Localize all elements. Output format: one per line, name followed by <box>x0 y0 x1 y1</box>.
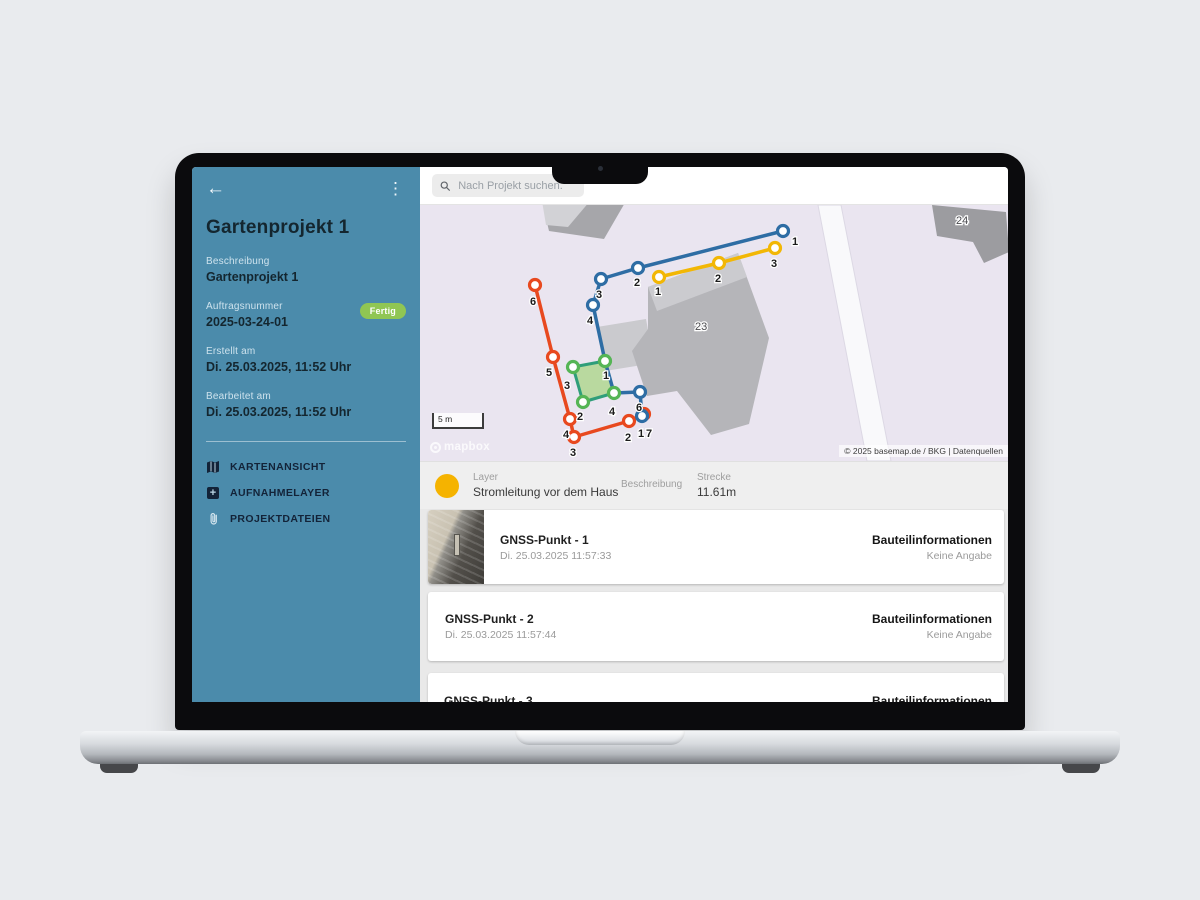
map-canvas[interactable]: 65432112346712313242324 <box>420 205 1008 461</box>
svg-text:4: 4 <box>587 315 594 327</box>
menu-label: KARTENANSICHT <box>230 461 326 473</box>
layer-value: Stromleitung vor dem Haus <box>473 485 621 499</box>
gnss-point-card[interactable]: GNSS-Punkt - 1 Di. 25.03.2025 11:57:33 B… <box>428 510 1004 584</box>
field-beschreibung: Beschreibung Gartenprojekt 1 <box>206 256 406 284</box>
point-title: GNSS-Punkt - 1 <box>500 533 872 547</box>
search-header <box>420 167 1008 205</box>
layer-label: Layer <box>473 472 621 483</box>
lid-lift-notch <box>515 731 685 745</box>
mapbox-logo: mapbox <box>430 441 490 453</box>
gnss-point-card[interactable]: GNSS-Punkt - 3 Bauteilinformationen <box>428 673 1004 702</box>
field-value: Gartenprojekt 1 <box>206 270 406 284</box>
svg-text:23: 23 <box>695 321 707 333</box>
field-label: Erstellt am <box>206 346 406 357</box>
component-info-label: Bauteilinformationen <box>872 694 992 702</box>
svg-text:2: 2 <box>634 277 640 289</box>
svg-text:2: 2 <box>715 273 721 285</box>
point-photo-thumbnail[interactable] <box>428 510 484 584</box>
component-info-value: Keine Angabe <box>927 629 992 641</box>
svg-text:3: 3 <box>570 447 576 459</box>
laptop-foot <box>1062 764 1100 773</box>
project-title: Gartenprojekt 1 <box>206 217 406 239</box>
layer-color-dot <box>435 474 459 498</box>
points-list: GNSS-Punkt - 1 Di. 25.03.2025 11:57:33 B… <box>420 509 1008 702</box>
sidebar-menu: KARTENANSICHT + AUFNAHMELAYER PROJEKTDAT… <box>206 454 406 532</box>
paperclip-icon <box>206 512 220 526</box>
svg-text:4: 4 <box>563 429 570 441</box>
point-timestamp: Di. 25.03.2025 11:57:33 <box>500 550 872 562</box>
back-button[interactable]: ← <box>206 179 225 199</box>
sidebar-item-aufnahmelayer[interactable]: + AUFNAHMELAYER <box>206 480 406 506</box>
svg-text:6: 6 <box>530 296 536 308</box>
point-title: GNSS-Punkt - 2 <box>445 612 872 626</box>
sidebar-item-projektdateien[interactable]: PROJEKTDATEIEN <box>206 506 406 532</box>
svg-text:1: 1 <box>792 236 798 248</box>
layer-summary-row[interactable]: Layer Stromleitung vor dem Haus Beschrei… <box>420 461 1008 509</box>
sidebar-item-kartenansicht[interactable]: KARTENANSICHT <box>206 454 406 480</box>
svg-text:2: 2 <box>577 411 583 423</box>
svg-text:2: 2 <box>625 432 631 444</box>
search-icon <box>440 180 450 192</box>
laptop-notch <box>552 153 648 184</box>
svg-text:1: 1 <box>655 286 661 298</box>
map-attribution: © 2025 basemap.de / BKG | Datenquellen <box>839 445 1008 457</box>
point-title: GNSS-Punkt - 3 <box>444 694 872 702</box>
component-info-value: Keine Angabe <box>927 550 992 562</box>
field-erstellt-am: Erstellt am Di. 25.03.2025, 11:52 Uhr <box>206 346 406 374</box>
svg-text:4: 4 <box>609 406 616 418</box>
laptop-base <box>80 731 1120 764</box>
map-scale-bar: 5 m <box>432 413 484 429</box>
sidebar-divider <box>206 441 406 442</box>
field-bearbeitet-am: Bearbeitet am Di. 25.03.2025, 11:52 Uhr <box>206 391 406 419</box>
menu-label: PROJEKTDATEIEN <box>230 513 331 525</box>
field-label: Auftragsnummer <box>206 301 288 312</box>
svg-text:3: 3 <box>564 380 570 392</box>
gnss-point-card[interactable]: GNSS-Punkt - 2 Di. 25.03.2025 11:57:44 B… <box>428 592 1004 661</box>
svg-text:3: 3 <box>596 289 602 301</box>
field-value: Di. 25.03.2025, 11:52 Uhr <box>206 405 406 419</box>
webcam <box>598 166 603 171</box>
field-value: Di. 25.03.2025, 11:52 Uhr <box>206 360 406 374</box>
svg-text:1: 1 <box>638 428 644 440</box>
map-view[interactable]: 65432112346712313242324 5 m mapbox © 202… <box>420 205 1008 461</box>
field-label: Bearbeitet am <box>206 391 406 402</box>
menu-label: AUFNAHMELAYER <box>230 487 330 499</box>
svg-text:3: 3 <box>771 258 777 270</box>
laptop-foot <box>100 764 138 773</box>
beschreibung-label: Beschreibung <box>621 479 697 490</box>
strecke-value: 11.61m <box>697 485 787 499</box>
main-panel: 65432112346712313242324 5 m mapbox © 202… <box>420 167 1008 702</box>
project-sidebar: ← ⋮ Gartenprojekt 1 Beschreibung Gartenp… <box>192 167 420 702</box>
status-badge: Fertig <box>360 303 406 319</box>
strecke-label: Strecke <box>697 472 787 483</box>
svg-text:24: 24 <box>956 215 968 227</box>
svg-text:5: 5 <box>546 367 552 379</box>
svg-text:7: 7 <box>646 428 652 440</box>
component-info-label: Bauteilinformationen <box>872 612 992 626</box>
map-icon <box>206 460 220 474</box>
field-value: 2025-03-24-01 <box>206 315 288 329</box>
add-layer-icon: + <box>206 486 220 500</box>
svg-text:1: 1 <box>603 370 609 382</box>
svg-text:6: 6 <box>636 402 642 414</box>
point-timestamp: Di. 25.03.2025 11:57:44 <box>445 629 872 641</box>
app-window: ← ⋮ Gartenprojekt 1 Beschreibung Gartenp… <box>192 167 1008 702</box>
mapbox-icon <box>430 442 441 453</box>
field-auftragsnummer: Auftragsnummer 2025-03-24-01 Fertig <box>206 301 406 329</box>
component-info-label: Bauteilinformationen <box>872 533 992 547</box>
field-label: Beschreibung <box>206 256 406 267</box>
overflow-menu-icon[interactable]: ⋮ <box>385 180 406 198</box>
